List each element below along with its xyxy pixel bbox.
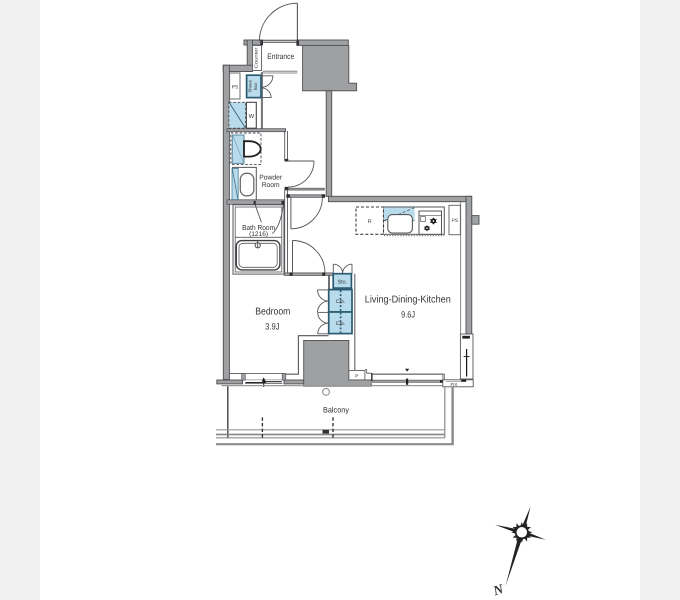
svg-text:Balcony: Balcony	[323, 405, 349, 414]
svg-text:Living-Dining-Kitchen: Living-Dining-Kitchen	[365, 294, 451, 305]
svg-text:Box: Box	[253, 82, 258, 90]
svg-text:(1216): (1216)	[249, 231, 268, 238]
svg-text:R: R	[368, 219, 372, 225]
svg-text:FIX: FIX	[450, 382, 457, 387]
svg-text:3.9J: 3.9J	[265, 321, 280, 331]
svg-text:PS: PS	[232, 84, 239, 90]
svg-text:P: P	[355, 374, 358, 380]
svg-text:Room: Room	[262, 182, 280, 189]
svg-text:9.6J: 9.6J	[401, 310, 415, 320]
svg-text:PS: PS	[451, 218, 458, 224]
svg-text:Bedroom: Bedroom	[255, 306, 290, 317]
svg-text:Powder: Powder	[259, 173, 283, 181]
svg-text:Entrance: Entrance	[267, 52, 294, 61]
svg-text:Clo.: Clo.	[336, 321, 346, 327]
svg-text:W: W	[249, 114, 255, 120]
svg-text:Clo.: Clo.	[336, 299, 346, 305]
svg-text:Counter: Counter	[253, 47, 258, 69]
svg-text:Sto.: Sto.	[338, 280, 348, 286]
svg-text:Shoes: Shoes	[248, 79, 253, 92]
